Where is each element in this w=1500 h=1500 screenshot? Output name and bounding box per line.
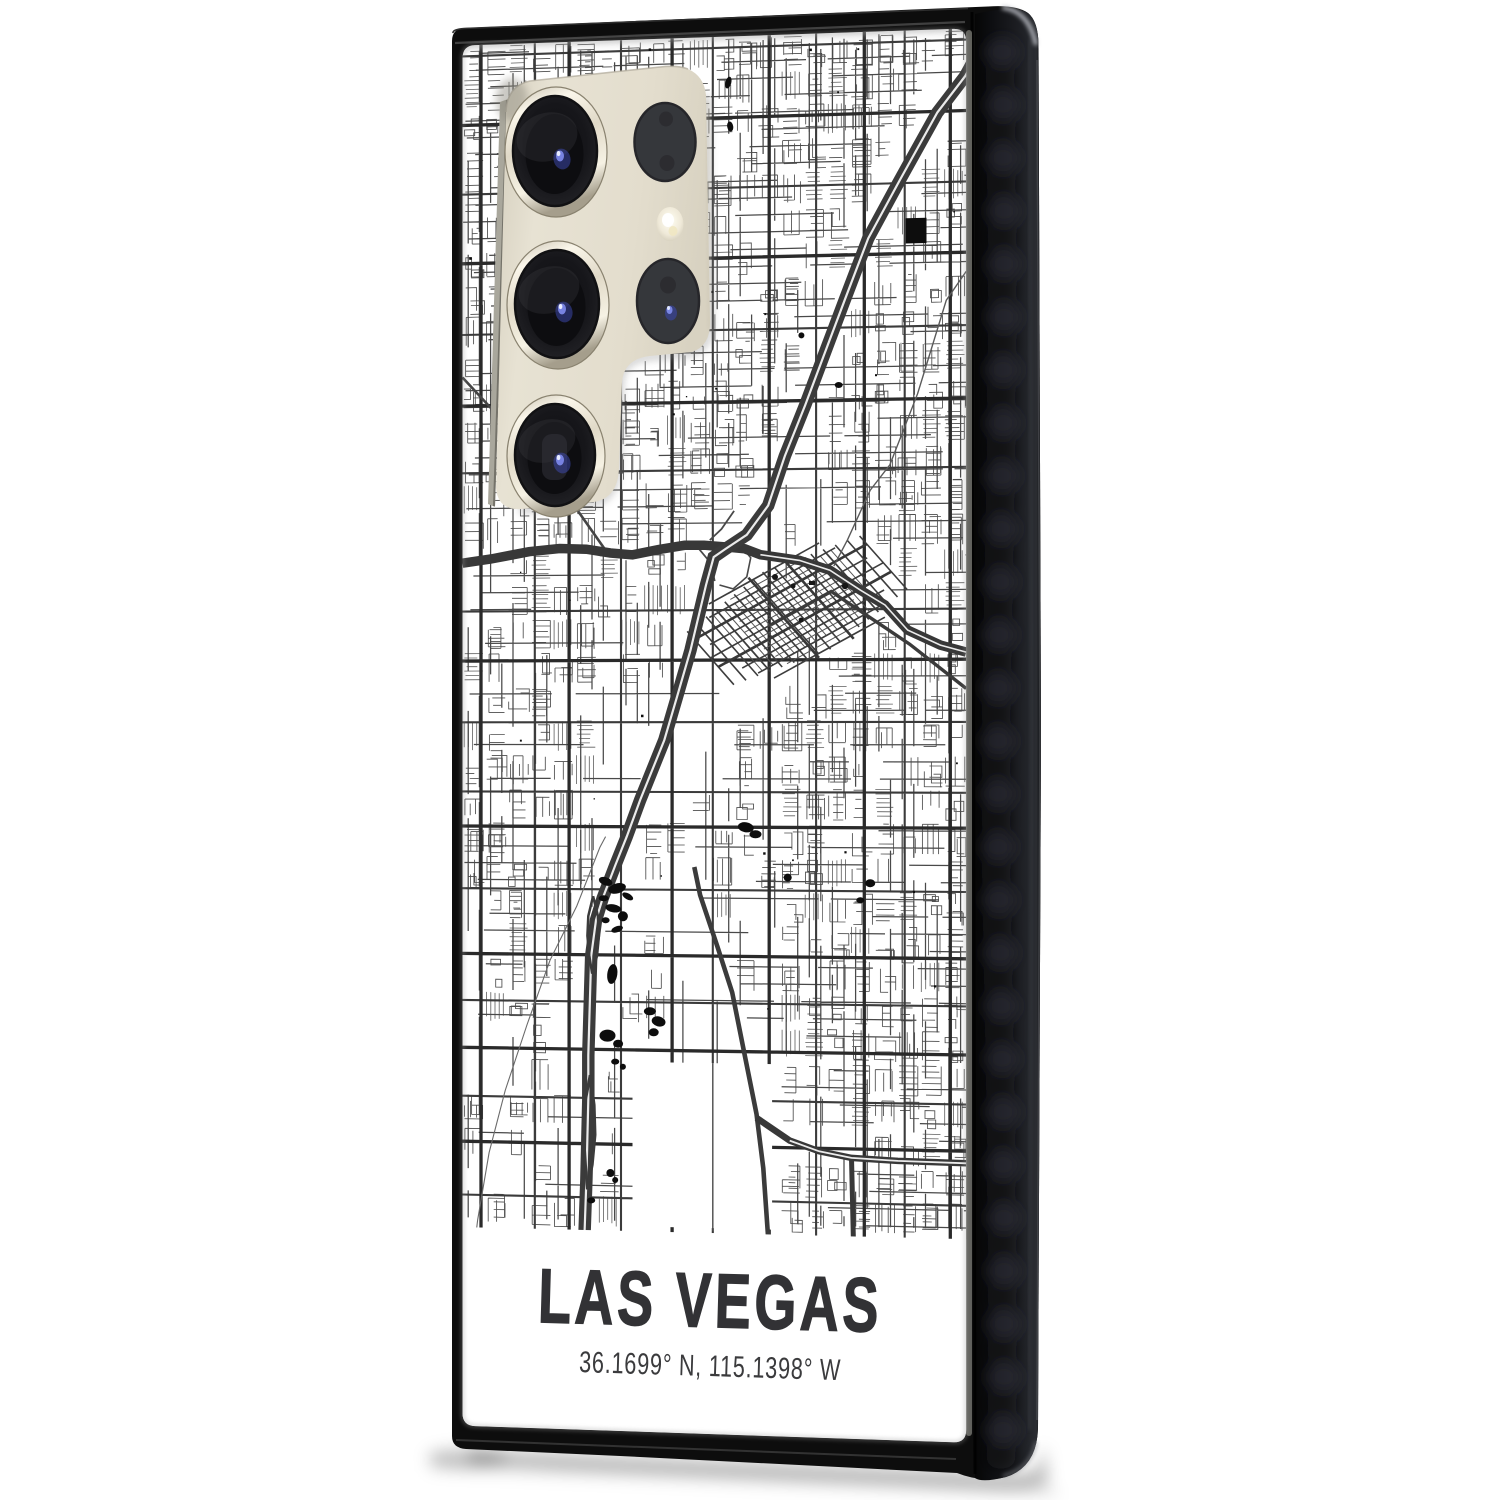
- svg-text:LAS VEGAS: LAS VEGAS: [537, 1253, 883, 1349]
